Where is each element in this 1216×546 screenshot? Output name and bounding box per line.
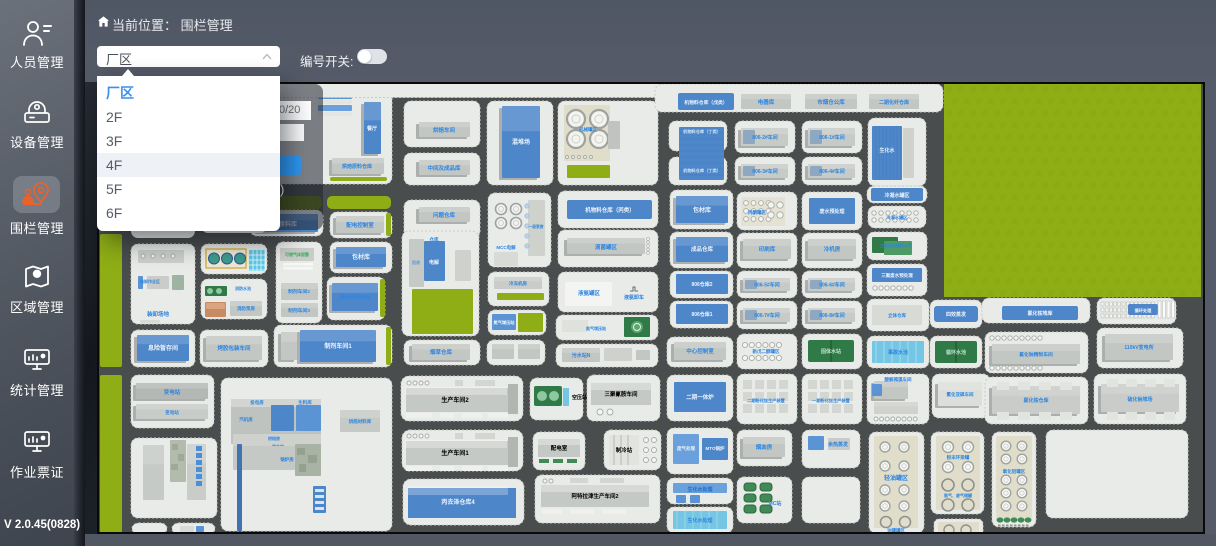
svg-text:消防泵房: 消防泵房 bbox=[237, 305, 255, 312]
svg-text:三聚氰胺车间: 三聚氰胺车间 bbox=[604, 390, 638, 398]
svg-text:二期粉化钛生产装置: 二期粉化钛生产装置 bbox=[747, 397, 786, 404]
svg-text:配电控制室: 配电控制室 bbox=[346, 221, 374, 229]
svg-text:硫化钠堆场: 硫化钠堆场 bbox=[1127, 396, 1152, 403]
svg-text:污水站N: 污水站N bbox=[572, 352, 591, 359]
svg-text:印刷库: 印刷库 bbox=[759, 245, 776, 253]
svg-text:固体水站: 固体水站 bbox=[821, 348, 841, 355]
svg-text:机物料仓库（戊类）: 机物料仓库（戊类） bbox=[684, 99, 727, 106]
svg-text:电器库: 电器库 bbox=[758, 98, 775, 106]
svg-text:机物料仓库（丁类）: 机物料仓库（丁类） bbox=[683, 128, 721, 135]
svg-text:烘焙车间: 烘焙车间 bbox=[433, 126, 456, 134]
svg-text:装卸作业区: 装卸作业区 bbox=[139, 278, 160, 284]
svg-text:氯化亚砜车间: 氯化亚砜车间 bbox=[947, 391, 974, 398]
svg-text:氯化铵堆库: 氯化铵堆库 bbox=[1027, 310, 1052, 317]
svg-text:806-2#车间: 806-2#车间 bbox=[752, 134, 778, 141]
svg-text:冷凝水罐区: 冷凝水罐区 bbox=[884, 192, 909, 199]
svg-text:成品仓库: 成品仓库 bbox=[691, 245, 714, 253]
svg-text:生化水处理: 生化水处理 bbox=[687, 486, 712, 493]
svg-text:中间及成品库: 中间及成品库 bbox=[427, 164, 461, 172]
svg-text:液氨卸车: 液氨卸车 bbox=[624, 294, 644, 301]
svg-text:变电站: 变电站 bbox=[164, 388, 181, 396]
svg-text:氯化铵仓库: 氯化铵仓库 bbox=[1023, 397, 1048, 404]
svg-text:息险暂存间: 息险暂存间 bbox=[148, 344, 178, 352]
svg-text:粉末环梁罐: 粉末环梁罐 bbox=[947, 454, 970, 461]
svg-text:循环水池: 循环水池 bbox=[946, 349, 966, 356]
svg-text:装卸场地: 装卸场地 bbox=[147, 310, 170, 318]
svg-text:氧化铝罐区: 氧化铝罐区 bbox=[1003, 468, 1026, 475]
svg-text:氮气增压站: 氮气增压站 bbox=[586, 325, 606, 331]
svg-text:烟囱房: 烟囱房 bbox=[756, 443, 773, 451]
svg-text:烟草仓库: 烟草仓库 bbox=[430, 348, 453, 356]
svg-text:变电站: 变电站 bbox=[165, 409, 179, 416]
svg-text:包材库: 包材库 bbox=[693, 206, 711, 214]
svg-text:制剂车间2: 制剂车间2 bbox=[288, 288, 310, 295]
svg-text:生产车间2: 生产车间2 bbox=[441, 396, 469, 404]
svg-text:一期粉化钛生产装置: 一期粉化钛生产装置 bbox=[812, 397, 851, 404]
svg-text:烤胶仓原料库: 烤胶仓原料库 bbox=[340, 294, 370, 301]
svg-text:液氨罐区: 液氨罐区 bbox=[578, 289, 601, 297]
svg-text:MC站: MC站 bbox=[769, 500, 782, 507]
svg-text:铝液: 铝液 bbox=[412, 259, 420, 265]
svg-text:烘焙原料仓库: 烘焙原料仓库 bbox=[342, 163, 372, 170]
svg-text:生化水: 生化水 bbox=[879, 147, 895, 154]
svg-text:锅炉房: 锅炉房 bbox=[279, 456, 294, 463]
svg-text:MTO锅炉: MTO锅炉 bbox=[706, 445, 725, 452]
svg-text:混堆场: 混堆场 bbox=[512, 138, 530, 146]
svg-text:氯化钠精制车间: 氯化钠精制车间 bbox=[1019, 351, 1053, 358]
svg-text:包材库: 包材库 bbox=[352, 253, 370, 261]
svg-text:轻油罐区: 轻油罐区 bbox=[884, 474, 908, 482]
svg-text:电解: 电解 bbox=[429, 259, 439, 266]
svg-text:余热蒸发: 余热蒸发 bbox=[827, 441, 849, 448]
svg-text:机物料仓库（丁类）: 机物料仓库（丁类） bbox=[683, 167, 721, 174]
svg-text:氨气、废气储罐: 氨气、废气储罐 bbox=[944, 492, 972, 498]
svg-text:806-1#车间: 806-1#车间 bbox=[819, 134, 845, 141]
svg-text:806仓库2: 806仓库2 bbox=[691, 281, 712, 288]
svg-text:生化水处理: 生化水处理 bbox=[687, 517, 712, 524]
svg-text:制剂车间3: 制剂车间3 bbox=[288, 307, 310, 314]
svg-text:806-3#车间: 806-3#车间 bbox=[752, 168, 778, 175]
svg-text:汽机房: 汽机房 bbox=[239, 416, 253, 423]
svg-text:丙去泽仓库4: 丙去泽仓库4 bbox=[441, 498, 475, 506]
svg-text:806仓库1: 806仓库1 bbox=[691, 311, 712, 318]
svg-text:立体仓库: 立体仓库 bbox=[888, 312, 906, 319]
svg-text:废水预处理: 废水预处理 bbox=[819, 208, 844, 215]
svg-text:滴菌罐区: 滴菌罐区 bbox=[595, 243, 618, 251]
svg-text:事故水池: 事故水池 bbox=[888, 349, 908, 356]
svg-text:烘焙材料库: 烘焙材料库 bbox=[349, 418, 372, 425]
svg-text:可燃气体报警: 可燃气体报警 bbox=[285, 251, 309, 257]
svg-text:酸解褐藻车间: 酸解褐藻车间 bbox=[885, 376, 912, 383]
svg-text:制剂车间1: 制剂车间1 bbox=[324, 342, 352, 350]
svg-text:氮气增压站: 氮气增压站 bbox=[494, 319, 516, 326]
svg-text:冷机房: 冷机房 bbox=[824, 245, 841, 253]
svg-text:中心控制室: 中心控制室 bbox=[686, 347, 714, 355]
svg-text:丙酮罐区: 丙酮罐区 bbox=[748, 209, 766, 216]
svg-text:二期化纤仓库: 二期化纤仓库 bbox=[879, 99, 909, 106]
svg-text:阿特拉津生产车间2: 阿特拉津生产车间2 bbox=[571, 492, 618, 500]
svg-text:制冷站: 制冷站 bbox=[616, 446, 633, 454]
svg-text:烘焙房: 烘焙房 bbox=[268, 435, 280, 441]
svg-text:806-4#车间: 806-4#车间 bbox=[819, 168, 845, 175]
svg-text:机物料仓库（丙类）: 机物料仓库（丙类） bbox=[584, 206, 635, 214]
svg-text:冷冻机房: 冷冻机房 bbox=[509, 280, 527, 287]
svg-text:生产车间1: 生产车间1 bbox=[441, 449, 469, 457]
svg-text:110kV变电所: 110kV变电所 bbox=[1124, 344, 1153, 351]
svg-text:806-7#车间: 806-7#车间 bbox=[754, 312, 780, 319]
svg-text:配电室: 配电室 bbox=[551, 444, 568, 452]
svg-text:问题仓库: 问题仓库 bbox=[433, 211, 456, 219]
svg-text:三聚废水预处理: 三聚废水预处理 bbox=[881, 272, 913, 279]
svg-text:空压站: 空压站 bbox=[572, 394, 587, 401]
svg-text:生料库: 生料库 bbox=[298, 399, 312, 406]
svg-text:循环处理: 循环处理 bbox=[1135, 307, 1153, 314]
svg-text:油罐罐区: 油罐罐区 bbox=[887, 527, 905, 532]
svg-text:四效蒸发: 四效蒸发 bbox=[946, 311, 967, 318]
svg-text:冷凝水罐区: 冷凝水罐区 bbox=[887, 214, 909, 221]
svg-text:806-8#车间: 806-8#车间 bbox=[819, 312, 845, 319]
svg-text:806-6#车间: 806-6#车间 bbox=[819, 282, 845, 289]
svg-text:三聚车间循环水池: 三聚车间循环水池 bbox=[880, 242, 912, 248]
svg-text:一级泵房: 一级泵房 bbox=[528, 224, 543, 229]
svg-text:烤胶包装车间: 烤胶包装车间 bbox=[217, 344, 251, 352]
svg-text:废气处理: 废气处理 bbox=[677, 445, 695, 452]
svg-text:消防水池: 消防水池 bbox=[235, 285, 251, 291]
svg-text:餐厅: 餐厅 bbox=[366, 125, 377, 132]
svg-text:MCC电解: MCC电解 bbox=[496, 244, 516, 251]
svg-text:二期一体炉: 二期一体炉 bbox=[686, 393, 714, 401]
svg-text:806-5#车间: 806-5#车间 bbox=[754, 282, 780, 289]
svg-text:投电房: 投电房 bbox=[250, 399, 264, 406]
svg-text:新戊二醇罐区: 新戊二醇罐区 bbox=[753, 348, 780, 355]
svg-text:机械罐区: 机械罐区 bbox=[579, 126, 597, 133]
svg-text:市烟仓公库: 市烟仓公库 bbox=[817, 98, 845, 106]
